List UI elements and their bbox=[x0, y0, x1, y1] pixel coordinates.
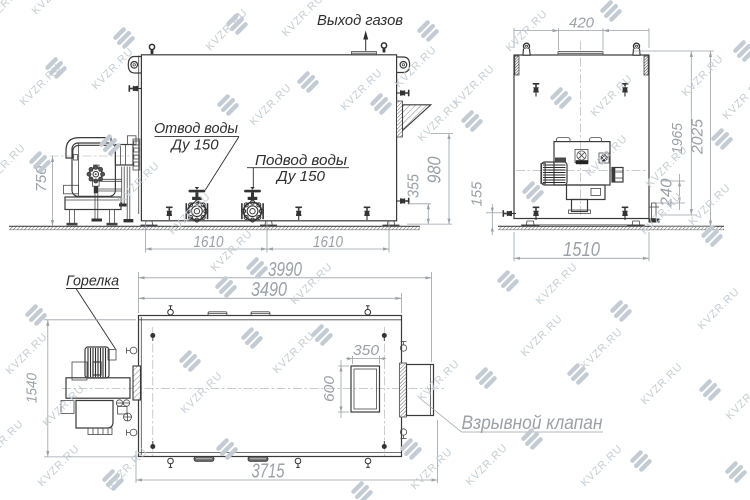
svg-text:350: 350 bbox=[353, 342, 380, 359]
svg-text:KVZR.RU: KVZR.RU bbox=[0, 142, 28, 188]
svg-text:KVZR.RU: KVZR.RU bbox=[271, 330, 317, 376]
svg-text:980: 980 bbox=[425, 157, 445, 184]
svg-text:Горелка: Горелка bbox=[66, 273, 119, 290]
svg-text:420: 420 bbox=[569, 14, 595, 31]
svg-text:KVZR.RU: KVZR.RU bbox=[30, 0, 76, 17]
svg-text:KVZR.RU: KVZR.RU bbox=[0, 0, 28, 27]
svg-text:Выход газов: Выход газов bbox=[317, 12, 403, 29]
svg-text:KVZR.RU: KVZR.RU bbox=[393, 44, 439, 90]
svg-text:KVZR.RU: KVZR.RU bbox=[0, 418, 26, 464]
svg-text:KVZR.RU: KVZR.RU bbox=[721, 76, 750, 122]
svg-text:Ду 150: Ду 150 bbox=[170, 137, 220, 154]
svg-text:KVZR.RU: KVZR.RU bbox=[464, 442, 510, 488]
svg-text:KVZR.RU: KVZR.RU bbox=[680, 53, 726, 99]
svg-text:KVZR.RU: KVZR.RU bbox=[534, 261, 580, 307]
svg-text:3990: 3990 bbox=[268, 259, 302, 281]
svg-text:KVZR.RU: KVZR.RU bbox=[724, 376, 750, 422]
svg-text:2025: 2025 bbox=[689, 119, 706, 155]
svg-text:KVZR.RU: KVZR.RU bbox=[248, 82, 294, 128]
svg-text:3490: 3490 bbox=[251, 279, 287, 301]
svg-text:KVZR.RU: KVZR.RU bbox=[179, 370, 225, 416]
svg-text:Отвод воды: Отвод воды bbox=[154, 120, 238, 137]
svg-text:KVZR.RU: KVZR.RU bbox=[519, 313, 565, 359]
svg-text:1610: 1610 bbox=[313, 234, 343, 251]
svg-text:1610: 1610 bbox=[194, 234, 224, 251]
svg-text:KVZR.RU: KVZR.RU bbox=[36, 443, 82, 489]
svg-text:155: 155 bbox=[469, 181, 486, 207]
svg-text:KVZR.RU: KVZR.RU bbox=[579, 443, 625, 489]
svg-text:1540: 1540 bbox=[24, 372, 41, 403]
svg-text:3715: 3715 bbox=[252, 461, 286, 483]
svg-text:1510: 1510 bbox=[563, 239, 600, 261]
svg-text:Подвод воды: Подвод воды bbox=[255, 152, 347, 169]
svg-text:KVZR.RU: KVZR.RU bbox=[639, 361, 685, 407]
svg-text:355: 355 bbox=[406, 174, 423, 198]
svg-text:Ду 150: Ду 150 bbox=[275, 168, 326, 185]
svg-text:600: 600 bbox=[321, 375, 338, 402]
svg-text:KVZR.RU: KVZR.RU bbox=[579, 326, 625, 372]
svg-text:KVZR.RU: KVZR.RU bbox=[4, 331, 50, 377]
svg-text:KVZR.RU: KVZR.RU bbox=[696, 286, 742, 332]
svg-text:KVZR.RU: KVZR.RU bbox=[589, 73, 635, 119]
